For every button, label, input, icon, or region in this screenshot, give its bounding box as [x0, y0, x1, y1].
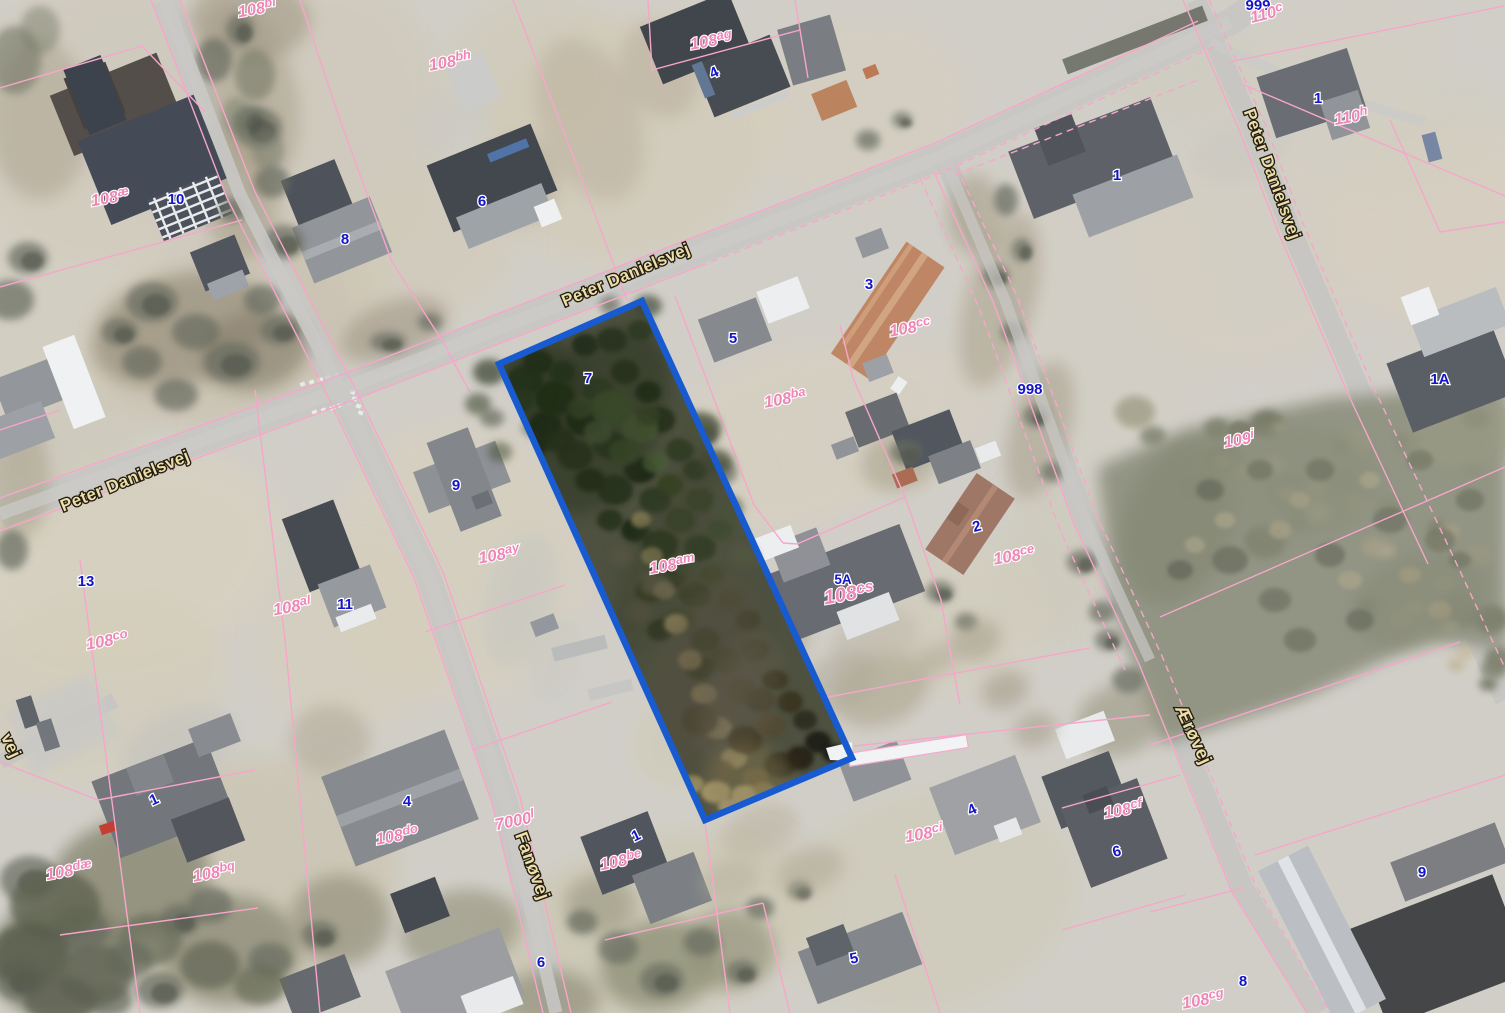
svg-text:9: 9 [452, 477, 460, 494]
svg-text:6: 6 [537, 954, 545, 971]
svg-text:3: 3 [865, 276, 873, 293]
svg-text:1: 1 [1113, 167, 1121, 184]
svg-text:13: 13 [78, 573, 95, 590]
svg-text:10: 10 [168, 191, 185, 208]
svg-text:1: 1 [1314, 90, 1322, 107]
svg-text:4: 4 [403, 793, 412, 810]
svg-text:8: 8 [1239, 973, 1247, 990]
svg-text:6: 6 [478, 193, 486, 210]
svg-text:7: 7 [584, 370, 592, 387]
svg-text:998: 998 [1017, 381, 1042, 398]
svg-text:5: 5 [729, 330, 737, 347]
svg-text:8: 8 [341, 231, 349, 248]
svg-text:1A: 1A [1430, 371, 1449, 388]
svg-text:9: 9 [1418, 864, 1426, 881]
svg-text:11: 11 [337, 596, 353, 613]
